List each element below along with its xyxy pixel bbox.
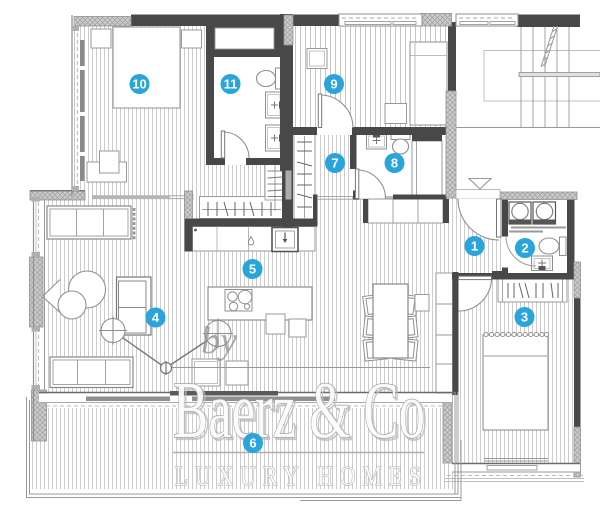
svg-text:8: 8 (391, 156, 398, 171)
svg-text:4: 4 (152, 310, 160, 325)
svg-text:6: 6 (249, 436, 256, 451)
svg-text:LUXURY HOMES: LUXURY HOMES (175, 461, 428, 491)
svg-text:2: 2 (521, 241, 528, 256)
svg-text:7: 7 (331, 156, 338, 171)
svg-text:10: 10 (132, 77, 146, 92)
svg-text:3: 3 (521, 310, 528, 325)
svg-text:1: 1 (471, 239, 478, 254)
svg-text:by: by (201, 320, 237, 362)
svg-text:Baerz & Co: Baerz & Co (173, 367, 425, 455)
svg-text:5: 5 (249, 262, 256, 277)
svg-text:9: 9 (330, 77, 337, 92)
svg-text:11: 11 (224, 77, 238, 92)
